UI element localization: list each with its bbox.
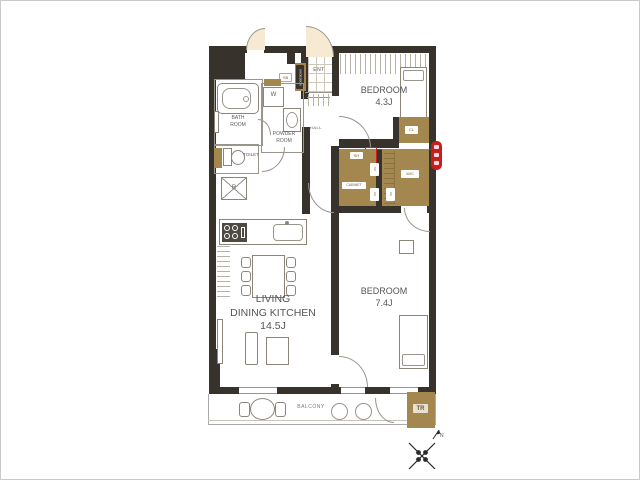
- stove: [222, 223, 247, 242]
- wall-under-storage: [339, 206, 401, 213]
- compass-north-label: N: [440, 433, 444, 439]
- balcony-chair: [275, 402, 286, 417]
- wall-ldk-bedroom2: [331, 214, 339, 355]
- powder-room-label: POWDER ROOM: [264, 131, 304, 144]
- shelf-pill-3: SH: [386, 188, 395, 201]
- floorplan-image: ENT SHOESBOX SB BATH ROOM W POWDER ROOM …: [0, 0, 640, 480]
- trunk-room-label: TR: [413, 404, 428, 413]
- window-bedroom2-balcony: [341, 387, 365, 394]
- bedroom1-pillow: [403, 70, 424, 81]
- storage-shelf-label: SH: [350, 152, 363, 159]
- bedroom1-label: BEDROOM 4.3J: [351, 85, 417, 108]
- hall-label: HALL: [304, 125, 328, 130]
- hall-ldk-door-swing-icon: [308, 183, 334, 213]
- red-tag: [431, 141, 442, 170]
- bathtub-drain: [243, 96, 249, 102]
- window-ldk-balcony: [239, 387, 277, 394]
- dining-chair: [241, 271, 251, 282]
- wall-ldk-bedroom2-stub: [331, 384, 339, 394]
- ldk-window-hatch: [217, 245, 230, 297]
- ldk-label: LIVING DINING KITCHEN 14.5J: [223, 293, 323, 334]
- ent-label: ENT: [307, 67, 331, 74]
- balcony-planter: [331, 403, 348, 420]
- entrance-hall-hatch: [308, 94, 332, 106]
- wall-ent-left: [287, 53, 295, 64]
- storage-cabinet-label: CABINET: [342, 182, 366, 189]
- toilet-door-swing-icon: [262, 147, 285, 172]
- door-swing-entrance-icon: [306, 26, 334, 57]
- wall-topleft-block: [209, 46, 245, 79]
- bedroom1-door-swing-icon: [339, 116, 371, 148]
- toilet-label: TOILET: [239, 152, 263, 158]
- bedroom2-pillow: [402, 354, 425, 366]
- bedroom2-door-swing-icon: [339, 356, 368, 387]
- dining-chair: [241, 257, 251, 268]
- kitchen-faucet: [285, 221, 289, 225]
- powder-sink-bowl: [286, 112, 298, 128]
- dining-chair: [286, 257, 296, 268]
- balcony-chair: [239, 402, 250, 417]
- dining-chair: [286, 271, 296, 282]
- wall-right: [429, 46, 436, 394]
- dining-table: [252, 255, 285, 298]
- balcony-inner-line: [208, 420, 436, 421]
- bedroom1-closet-label: CL: [405, 126, 418, 134]
- compass-icon: N: [401, 425, 445, 469]
- tv-board: [217, 319, 223, 364]
- door-swing-service-icon: [246, 28, 265, 50]
- washer-label: W: [263, 92, 284, 100]
- balcony-label: BALCONY: [291, 404, 331, 411]
- shelf-pill-1: SH: [370, 163, 379, 176]
- kitchen-sink: [273, 224, 303, 241]
- wic-label: WIC: [401, 170, 419, 178]
- toilet-cabinet: [214, 148, 222, 168]
- bathroom-label: BATH ROOM: [218, 115, 258, 128]
- bedroom2-desk: [399, 240, 414, 254]
- washer-shelf: [264, 79, 281, 86]
- fridge-label: R: [221, 185, 247, 193]
- bedroom2-label: BEDROOM 7.4J: [351, 286, 417, 309]
- balcony-table: [250, 398, 275, 420]
- shelf-pill-2: SH: [370, 188, 379, 201]
- sofa: [245, 332, 258, 365]
- balcony-planter: [355, 403, 372, 420]
- low-table: [266, 337, 289, 365]
- entrance-step-line1: [305, 92, 332, 93]
- wic-door-swing-icon: [404, 208, 430, 232]
